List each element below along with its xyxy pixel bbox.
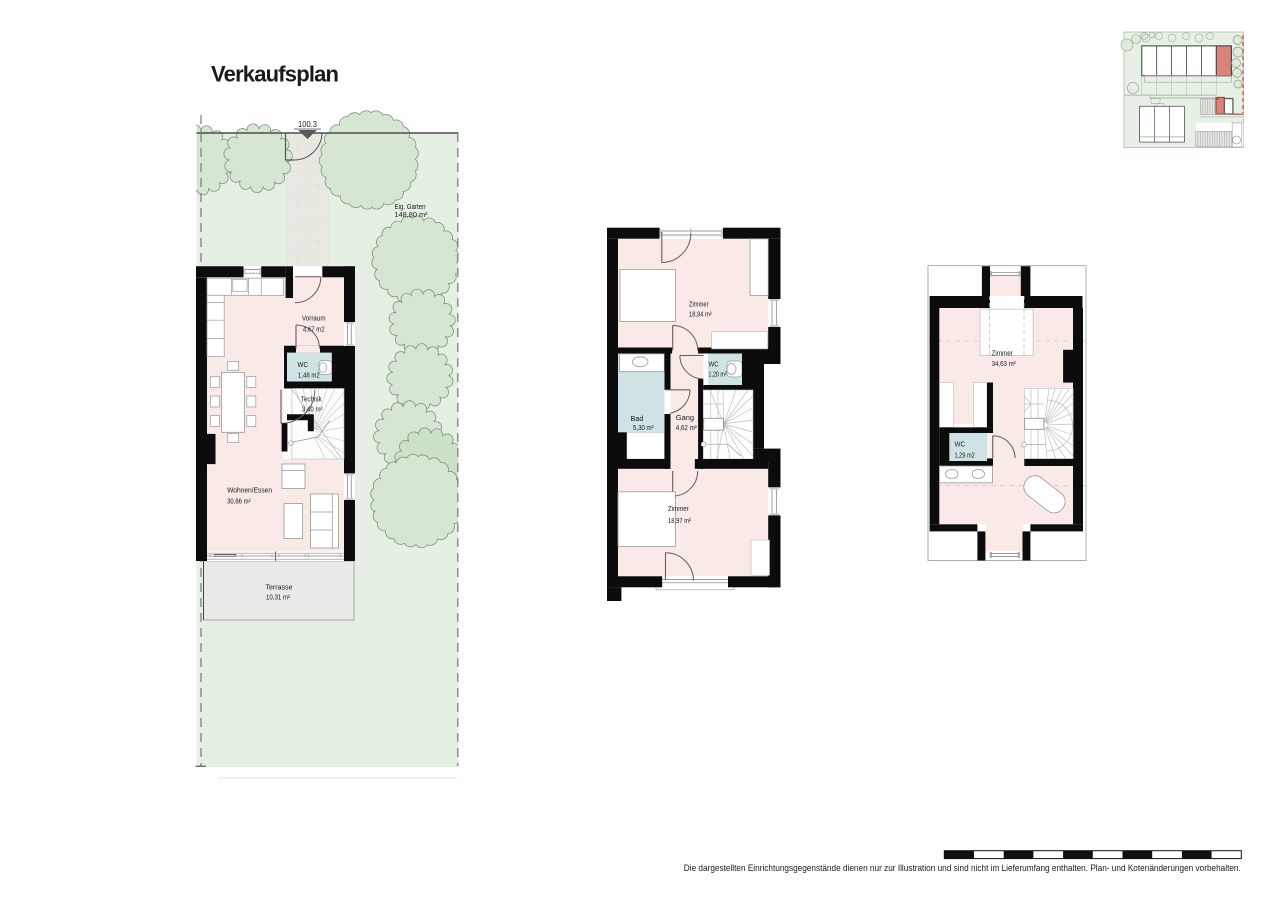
svg-text:148,80 m²: 148,80 m² bbox=[395, 212, 429, 219]
svg-text:Zimmer: Zimmer bbox=[992, 350, 1014, 357]
svg-text:34,63 m²: 34,63 m² bbox=[992, 361, 1017, 368]
svg-text:1,20 m²: 1,20 m² bbox=[709, 372, 728, 379]
svg-text:Terrasse: Terrasse bbox=[266, 585, 293, 592]
svg-text:100.3: 100.3 bbox=[298, 120, 318, 129]
svg-text:WC: WC bbox=[298, 362, 309, 369]
svg-text:WC: WC bbox=[955, 442, 966, 449]
svg-text:3,40 m²: 3,40 m² bbox=[302, 406, 323, 413]
svg-text:Technik: Technik bbox=[301, 396, 322, 403]
svg-text:1,48 m2: 1,48 m2 bbox=[298, 372, 320, 379]
svg-text:30,86 m²: 30,86 m² bbox=[227, 499, 251, 506]
svg-text:Vorraum: Vorraum bbox=[302, 316, 326, 323]
svg-text:Wohnen/Essen: Wohnen/Essen bbox=[227, 488, 272, 495]
svg-text:Eig. Garten: Eig. Garten bbox=[395, 204, 426, 211]
svg-text:10,31 m²: 10,31 m² bbox=[266, 595, 291, 602]
svg-text:WC: WC bbox=[709, 361, 719, 368]
svg-text:4,62 m²: 4,62 m² bbox=[676, 425, 698, 432]
svg-text:Die dargestellten Einrichtungs: Die dargestellten Einrichtungsgegenständ… bbox=[684, 863, 1241, 873]
svg-text:5,30 m²: 5,30 m² bbox=[633, 425, 654, 432]
svg-text:Bad: Bad bbox=[631, 416, 644, 423]
svg-text:1,29 m2: 1,29 m2 bbox=[955, 453, 975, 460]
svg-text:4,67 m2: 4,67 m2 bbox=[303, 327, 325, 334]
svg-text:18,97 m²: 18,97 m² bbox=[668, 518, 692, 525]
svg-text:Verkaufsplan: Verkaufsplan bbox=[211, 62, 339, 87]
svg-text:Zimmer: Zimmer bbox=[668, 506, 689, 513]
svg-text:Gang: Gang bbox=[676, 415, 694, 422]
svg-text:18,94 m²: 18,94 m² bbox=[689, 312, 712, 319]
svg-text:Zimmer: Zimmer bbox=[689, 302, 709, 309]
